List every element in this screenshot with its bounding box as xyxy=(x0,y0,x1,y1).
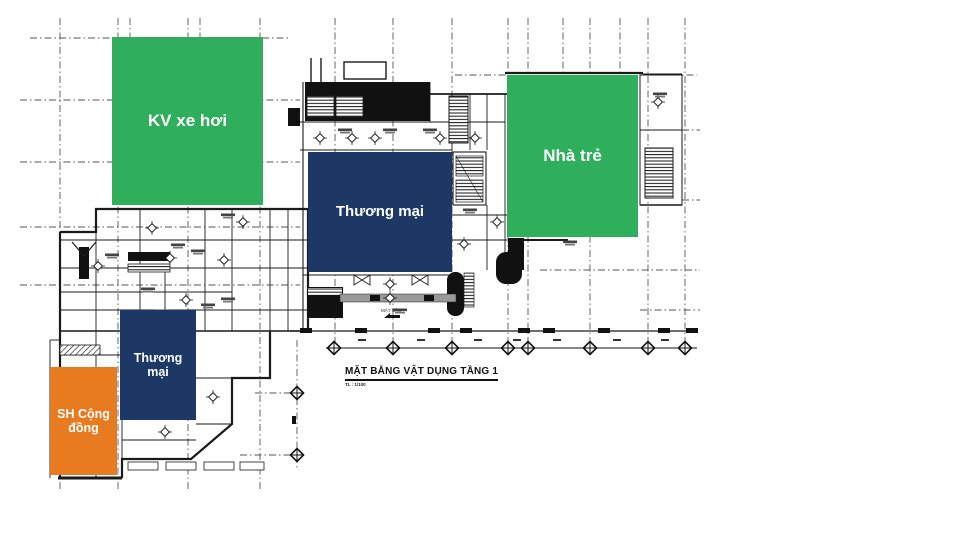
zone-kv-xe-hoi: KV xe hơi xyxy=(112,37,263,205)
zone-thuong-mai-nho-label: Thương mại xyxy=(124,351,192,380)
ground-level-annotation: MẶT SÂN xyxy=(381,307,401,318)
zone-sh-cong-dong: SH Cộng đồng xyxy=(50,367,117,475)
zone-nha-tre: Nhà trẻ xyxy=(507,75,638,237)
zone-thuong-mai-lon: Thương mại xyxy=(308,152,452,272)
drawing-title-block: MẶT BẰNG VẬT DỤNG TẦNG 1 TL : 1/100 xyxy=(345,366,498,387)
dimension-line xyxy=(290,339,697,462)
zone-thuong-mai-lon-label: Thương mại xyxy=(336,203,424,220)
drawing-title: MẶT BẰNG VẬT DỤNG TẦNG 1 xyxy=(345,366,498,381)
zone-nha-tre-label: Nhà trẻ xyxy=(543,146,602,166)
zone-kv-xe-hoi-label: KV xe hơi xyxy=(148,111,227,131)
drawing-scale: TL : 1/100 xyxy=(345,382,498,387)
zone-thuong-mai-nho: Thương mại xyxy=(120,310,196,420)
zone-sh-cong-dong-label: SH Cộng đồng xyxy=(54,407,113,436)
floor-plan-page: MẶT SÂN KV xe hơi Nhà trẻ Thương mại Thư… xyxy=(0,0,960,540)
ground-level-text: MẶT SÂN xyxy=(381,307,401,313)
